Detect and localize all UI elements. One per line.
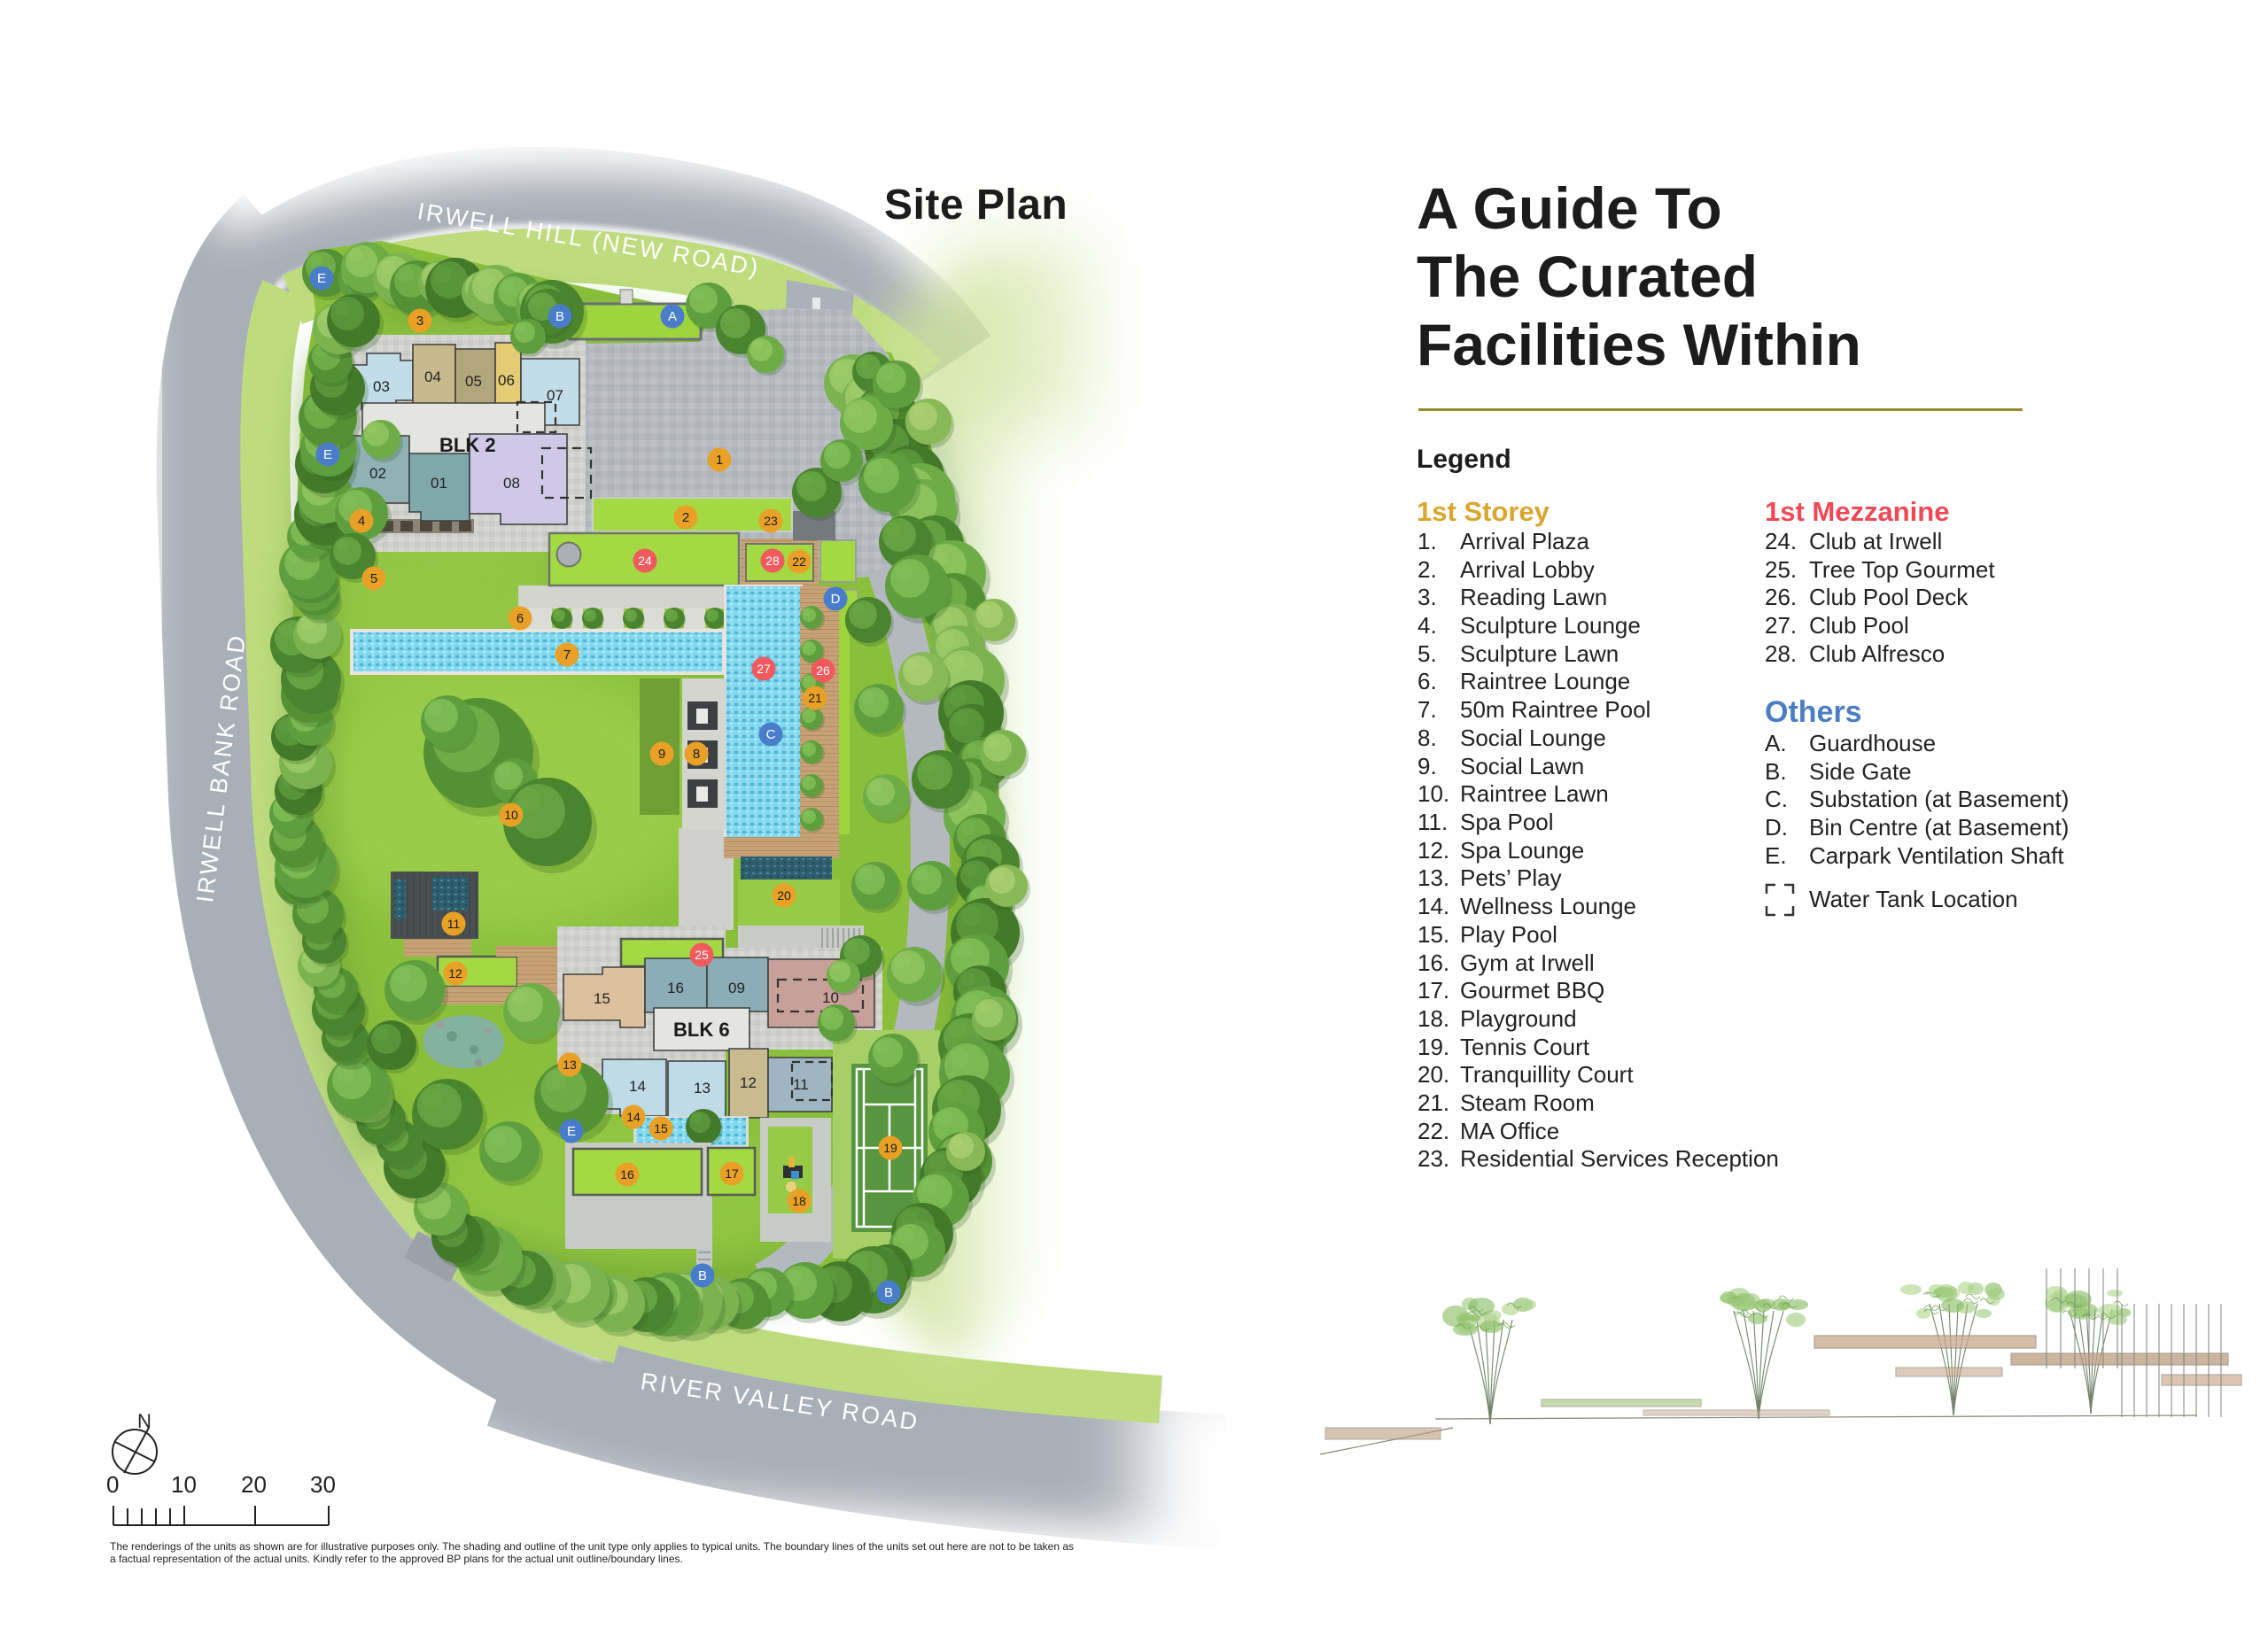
- svg-text:1: 1: [716, 453, 723, 468]
- svg-text:13: 13: [563, 1058, 577, 1072]
- svg-text:B.: B.: [1765, 758, 1787, 785]
- svg-text:8.: 8.: [1417, 725, 1437, 751]
- svg-text:Arrival Lobby: Arrival Lobby: [1460, 556, 1595, 583]
- svg-text:11: 11: [447, 917, 461, 931]
- svg-text:14: 14: [629, 1078, 646, 1095]
- svg-text:18.: 18.: [1417, 1005, 1449, 1032]
- svg-text:Site Plan: Site Plan: [884, 182, 1068, 229]
- svg-text:10: 10: [504, 808, 518, 822]
- svg-text:Tranquillity Court: Tranquillity Court: [1460, 1061, 1634, 1088]
- svg-text:7.: 7.: [1417, 696, 1437, 723]
- svg-text:27: 27: [757, 662, 771, 676]
- svg-text:3: 3: [416, 314, 423, 329]
- svg-text:17: 17: [725, 1166, 739, 1181]
- svg-text:D.: D.: [1765, 814, 1788, 841]
- svg-text:28: 28: [765, 554, 780, 568]
- svg-text:Tennis Court: Tennis Court: [1460, 1034, 1590, 1060]
- svg-text:30: 30: [310, 1471, 336, 1498]
- svg-text:7: 7: [563, 647, 571, 663]
- svg-text:11: 11: [793, 1076, 809, 1093]
- svg-text:A Guide To: A Guide To: [1417, 175, 1722, 241]
- svg-text:10: 10: [171, 1471, 197, 1498]
- svg-text:19: 19: [883, 1141, 897, 1155]
- svg-text:Substation (at Basement): Substation (at Basement): [1809, 786, 2069, 812]
- svg-text:9: 9: [658, 747, 665, 762]
- svg-text:16: 16: [620, 1167, 634, 1182]
- svg-text:BLK 2: BLK 2: [439, 434, 496, 456]
- svg-text:15.: 15.: [1417, 921, 1449, 948]
- svg-text:23.: 23.: [1417, 1145, 1449, 1172]
- svg-text:Sculpture Lawn: Sculpture Lawn: [1460, 640, 1619, 667]
- svg-text:13: 13: [694, 1080, 711, 1097]
- svg-text:12: 12: [448, 966, 462, 980]
- svg-text:Bin Centre (at Basement): Bin Centre (at Basement): [1809, 814, 2069, 841]
- svg-text:Play Pool: Play Pool: [1460, 921, 1557, 948]
- svg-text:05: 05: [465, 373, 482, 390]
- svg-text:Raintree Lawn: Raintree Lawn: [1460, 780, 1609, 807]
- svg-text:Club Alfresco: Club Alfresco: [1809, 640, 1945, 667]
- svg-text:Others: Others: [1765, 695, 1862, 729]
- svg-text:N: N: [137, 1410, 151, 1432]
- svg-text:Pets’ Play: Pets’ Play: [1460, 864, 1562, 891]
- svg-text:Tree Top Gourmet: Tree Top Gourmet: [1809, 556, 1995, 583]
- svg-text:26.: 26.: [1765, 584, 1797, 610]
- svg-text:20: 20: [777, 888, 791, 903]
- svg-text:09: 09: [728, 980, 745, 996]
- svg-text:24.: 24.: [1765, 528, 1797, 554]
- svg-text:50m Raintree Pool: 50m Raintree Pool: [1460, 696, 1651, 723]
- svg-text:Spa Pool: Spa Pool: [1460, 809, 1554, 835]
- svg-text:04: 04: [424, 368, 441, 385]
- svg-text:E.: E.: [1765, 842, 1787, 869]
- svg-text:Social Lawn: Social Lawn: [1460, 753, 1584, 779]
- svg-text:Guardhouse: Guardhouse: [1809, 730, 1936, 756]
- svg-text:C: C: [766, 727, 776, 742]
- svg-text:Social Lounge: Social Lounge: [1460, 725, 1606, 751]
- svg-text:B: B: [555, 309, 564, 324]
- svg-text:MA Office: MA Office: [1460, 1118, 1559, 1144]
- svg-text:Wellness Lounge: Wellness Lounge: [1460, 893, 1636, 919]
- svg-text:9.: 9.: [1417, 753, 1437, 779]
- svg-text:22: 22: [792, 554, 806, 569]
- svg-text:1st Mezzanine: 1st Mezzanine: [1765, 496, 1949, 527]
- svg-text:02: 02: [369, 465, 386, 482]
- svg-text:Raintree Lounge: Raintree Lounge: [1460, 668, 1630, 694]
- svg-text:8: 8: [693, 747, 700, 762]
- svg-text:1st Storey: 1st Storey: [1417, 496, 1550, 527]
- svg-text:a factual representation of th: a factual representation of the actual u…: [110, 1553, 683, 1565]
- svg-text:03: 03: [373, 378, 390, 395]
- svg-text:01: 01: [431, 475, 447, 492]
- svg-text:Residential Services Reception: Residential Services Reception: [1460, 1145, 1779, 1172]
- svg-text:Arrival Plaza: Arrival Plaza: [1460, 528, 1589, 554]
- svg-text:16.: 16.: [1417, 949, 1449, 976]
- svg-text:E: E: [317, 271, 326, 286]
- svg-text:25: 25: [695, 948, 709, 962]
- svg-text:16: 16: [667, 980, 684, 996]
- svg-text:12.: 12.: [1417, 837, 1449, 864]
- svg-text:27.: 27.: [1765, 612, 1797, 639]
- svg-text:3.: 3.: [1417, 584, 1437, 610]
- svg-text:B: B: [884, 1285, 893, 1300]
- svg-text:Club Pool Deck: Club Pool Deck: [1809, 584, 1969, 610]
- svg-text:20: 20: [241, 1471, 267, 1498]
- svg-text:A.: A.: [1765, 730, 1787, 756]
- svg-text:A: A: [668, 309, 677, 324]
- svg-text:Reading Lawn: Reading Lawn: [1460, 584, 1607, 610]
- svg-text:14: 14: [626, 1110, 641, 1124]
- svg-text:Club Pool: Club Pool: [1809, 612, 1909, 639]
- svg-text:6.: 6.: [1417, 668, 1437, 694]
- svg-text:Spa Lounge: Spa Lounge: [1460, 837, 1584, 864]
- svg-text:E: E: [323, 447, 332, 462]
- svg-text:Sculpture Lounge: Sculpture Lounge: [1460, 612, 1641, 639]
- svg-text:28.: 28.: [1765, 640, 1797, 667]
- svg-text:12: 12: [740, 1074, 757, 1091]
- svg-text:15: 15: [594, 990, 610, 1007]
- svg-text:Gourmet BBQ: Gourmet BBQ: [1460, 977, 1604, 1004]
- svg-text:Water Tank Location: Water Tank Location: [1809, 886, 2018, 912]
- svg-text:19.: 19.: [1417, 1034, 1449, 1060]
- svg-text:BLK 6: BLK 6: [673, 1019, 730, 1041]
- svg-text:22.: 22.: [1417, 1118, 1449, 1144]
- svg-text:24: 24: [638, 554, 652, 568]
- svg-text:1.: 1.: [1417, 528, 1437, 554]
- svg-text:Side Gate: Side Gate: [1809, 758, 1912, 785]
- svg-text:06: 06: [498, 372, 515, 389]
- svg-text:Legend: Legend: [1417, 445, 1511, 474]
- svg-text:B: B: [698, 1268, 707, 1283]
- svg-text:6: 6: [517, 611, 524, 626]
- svg-text:2: 2: [682, 510, 689, 525]
- svg-text:The renderings of the units as: The renderings of the units as shown are…: [110, 1540, 1074, 1553]
- svg-text:17.: 17.: [1417, 977, 1449, 1004]
- svg-text:21: 21: [808, 691, 822, 705]
- svg-text:5.: 5.: [1417, 640, 1437, 667]
- svg-text:14.: 14.: [1417, 893, 1449, 919]
- svg-text:23: 23: [764, 514, 778, 528]
- svg-text:0: 0: [106, 1471, 119, 1498]
- svg-text:The Curated: The Curated: [1417, 244, 1758, 309]
- svg-text:2.: 2.: [1417, 556, 1437, 583]
- svg-text:20.: 20.: [1417, 1061, 1449, 1088]
- svg-text:Club at Irwell: Club at Irwell: [1809, 528, 1942, 554]
- svg-text:4.: 4.: [1417, 612, 1437, 639]
- svg-text:26: 26: [816, 663, 830, 678]
- svg-text:15: 15: [654, 1121, 668, 1135]
- svg-text:10.: 10.: [1417, 780, 1449, 807]
- svg-text:Carpark Ventilation Shaft: Carpark Ventilation Shaft: [1809, 842, 2064, 869]
- svg-text:25.: 25.: [1765, 556, 1797, 583]
- svg-text:08: 08: [503, 475, 520, 492]
- svg-text:E: E: [567, 1124, 576, 1139]
- svg-text:4: 4: [358, 514, 365, 529]
- svg-text:13.: 13.: [1417, 864, 1449, 891]
- svg-text:D: D: [831, 592, 841, 607]
- svg-text:Playground: Playground: [1460, 1005, 1577, 1032]
- svg-text:Facilities Within: Facilities Within: [1417, 312, 1861, 377]
- svg-text:18: 18: [792, 1194, 806, 1208]
- svg-text:5: 5: [370, 571, 377, 586]
- svg-text:Gym at Irwell: Gym at Irwell: [1460, 949, 1595, 976]
- svg-text:C.: C.: [1765, 786, 1788, 812]
- svg-text:11.: 11.: [1417, 809, 1448, 835]
- svg-text:21.: 21.: [1417, 1089, 1449, 1116]
- svg-text:Steam Room: Steam Room: [1460, 1089, 1595, 1116]
